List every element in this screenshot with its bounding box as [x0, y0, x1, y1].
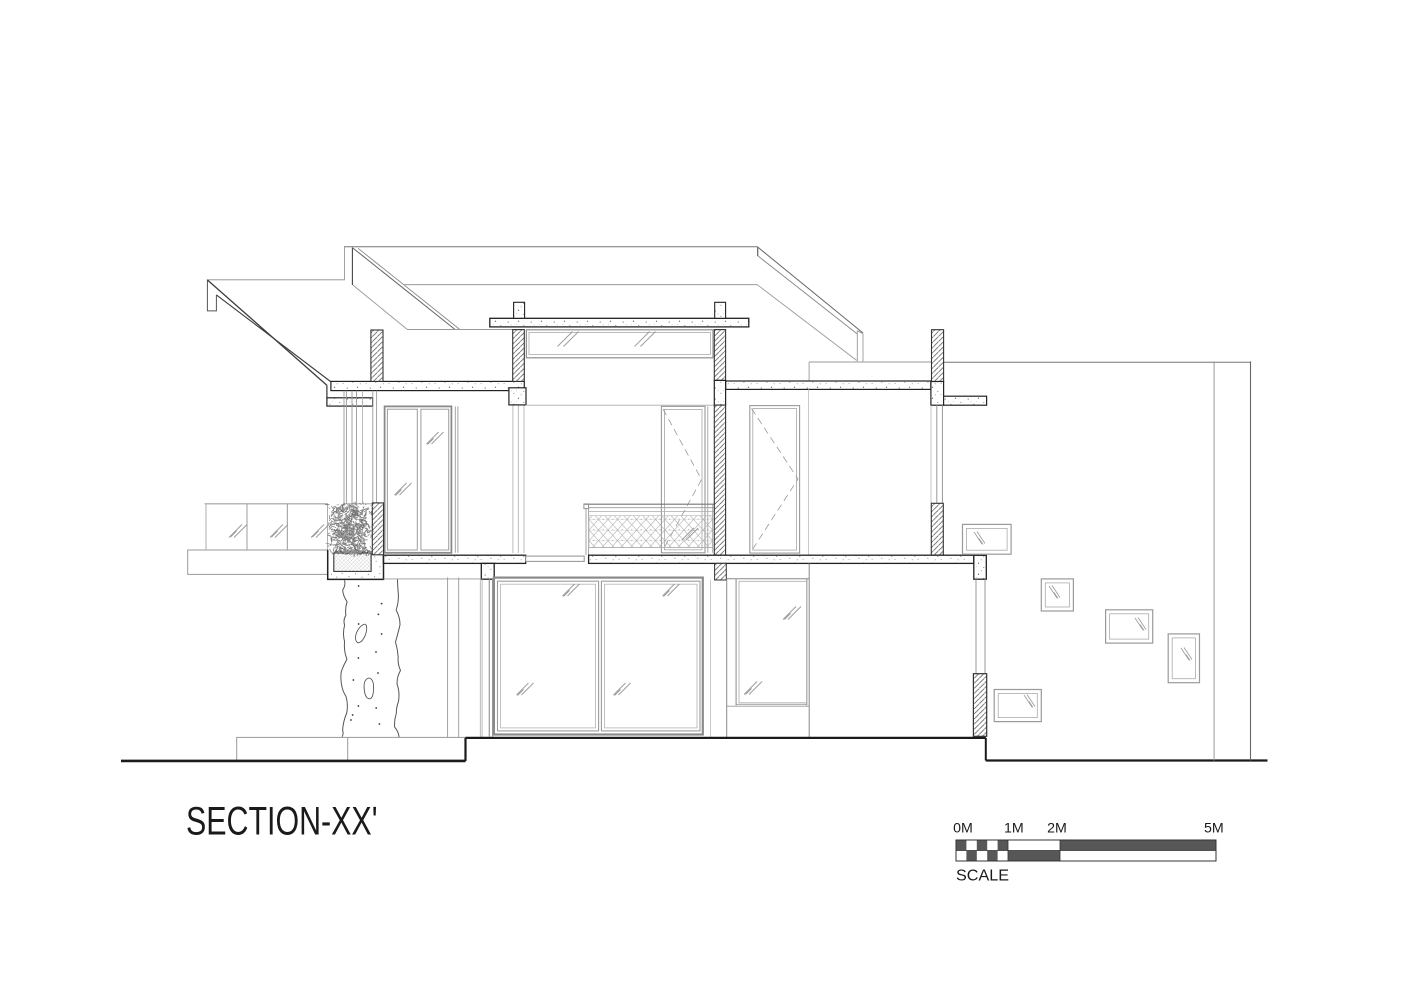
- svg-text:2M: 2M: [1047, 821, 1067, 837]
- svg-text:1M: 1M: [1004, 821, 1024, 837]
- svg-text:SECTION-XX': SECTION-XX': [186, 800, 378, 844]
- svg-text:0M: 0M: [953, 821, 973, 837]
- svg-text:SCALE: SCALE: [956, 868, 1009, 885]
- svg-text:5M: 5M: [1204, 821, 1224, 837]
